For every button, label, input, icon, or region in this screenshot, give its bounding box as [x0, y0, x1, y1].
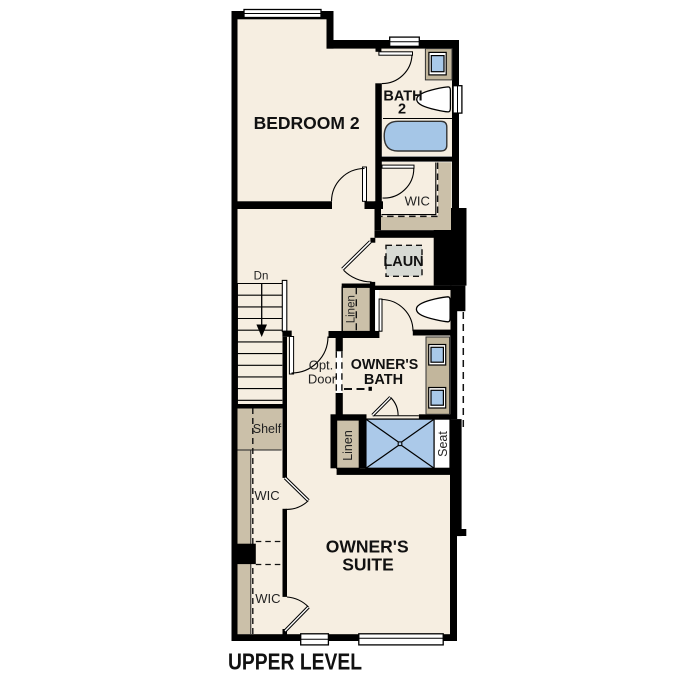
svg-text:Door: Door [308, 372, 337, 387]
svg-text:Linen: Linen [341, 430, 355, 461]
svg-text:WIC: WIC [405, 194, 430, 209]
svg-text:Linen: Linen [345, 295, 357, 323]
svg-text:LAUN: LAUN [383, 254, 423, 270]
svg-text:Dn: Dn [254, 271, 269, 283]
svg-text:BEDROOM 2: BEDROOM 2 [254, 113, 360, 133]
svg-text:BATH: BATH [364, 372, 403, 388]
svg-text:Opt.: Opt. [309, 358, 334, 373]
svg-text:2: 2 [398, 102, 406, 118]
svg-text:WIC: WIC [255, 591, 280, 606]
svg-text:SUITE: SUITE [342, 555, 394, 575]
svg-text:OWNER'S: OWNER'S [326, 537, 409, 557]
svg-text:WIC: WIC [254, 488, 279, 503]
svg-text:Seat: Seat [436, 431, 450, 457]
svg-text:UPPER LEVEL: UPPER LEVEL [228, 649, 362, 675]
svg-text:OWNER'S: OWNER'S [351, 357, 419, 373]
svg-text:Shelf: Shelf [253, 422, 282, 436]
